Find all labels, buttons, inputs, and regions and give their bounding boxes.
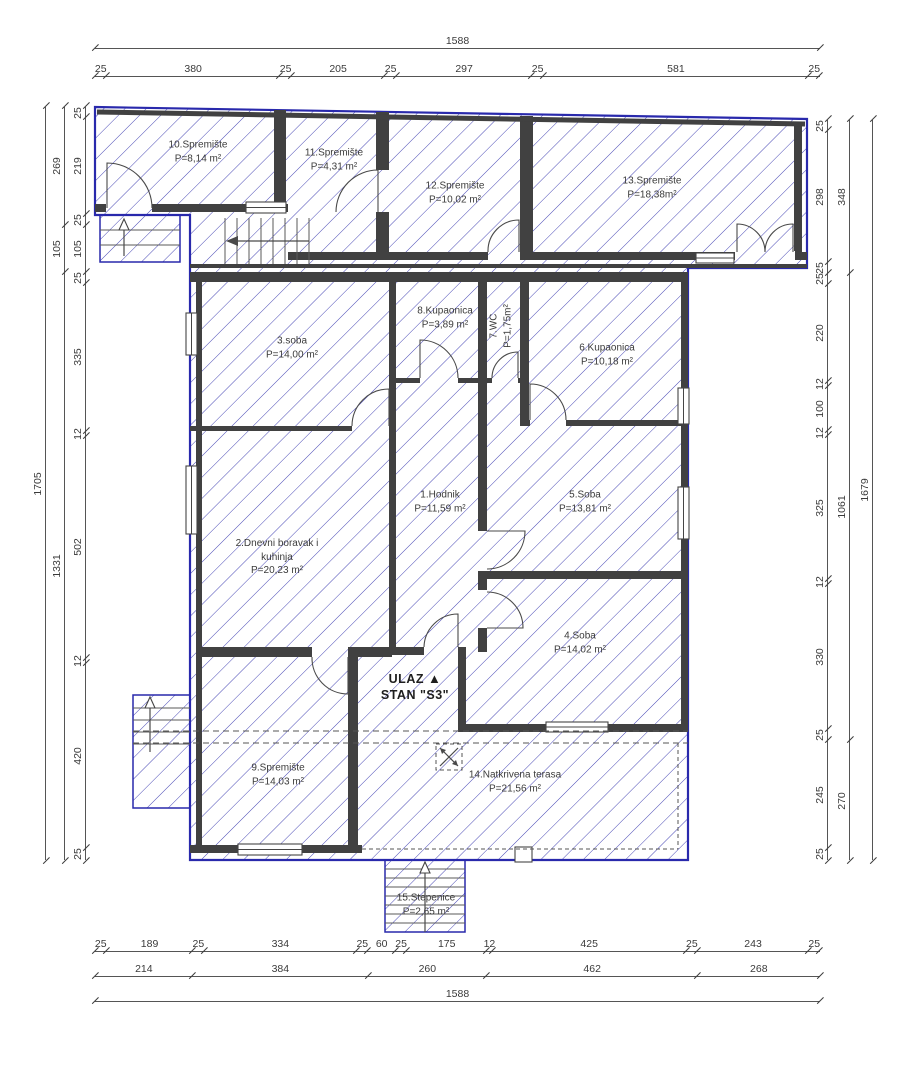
dim-segment: 380 [106,76,279,77]
dim-segment: 420 [85,663,86,848]
dim-label: 1679 [859,478,871,501]
dim-label: 25 [808,63,820,75]
dim-label: 25 [686,938,698,950]
dim-label: 325 [814,499,826,517]
dim-label: 335 [72,348,84,366]
dim-segment: 297 [396,76,532,77]
dim-segment: 330 [827,585,828,730]
dim-segment: 25 [827,849,828,860]
dim-label: 334 [272,938,290,950]
dim-segment: 25 [809,951,820,952]
room-label-wc-7: 7.WCP=1,75m² [488,304,515,348]
dim-label: 25 [532,63,544,75]
dim-label: 25 [356,938,368,950]
dim-segment: 270 [849,741,850,860]
dim-segment: 25 [85,849,86,860]
dim-label: 205 [329,63,347,75]
dim-segment: 335 [85,283,86,431]
dim-segment: 260 [368,976,487,977]
room-label-kupaonica-6: 6.KupaonicaP=10,18 m² [579,342,635,369]
dim-segment: 205 [291,76,385,77]
dim-label: 425 [580,938,598,950]
dim-label: 245 [814,786,826,804]
entrance-arrow-icon: ▲ [428,671,441,686]
dim-segment: 268 [698,976,820,977]
dim-label: 462 [583,963,601,975]
dim-label: 380 [184,63,202,75]
dim-label: 1331 [51,554,63,577]
room-label-soba-4: 4.SobaP=14,02 m² [554,630,606,657]
dim-label: 100 [814,400,826,418]
exterior-steps-top [100,215,180,262]
dim-segment: 581 [543,76,808,77]
dim-segment: 348 [849,120,850,273]
dim-label: 25 [95,938,107,950]
dim-segment: 462 [487,976,698,977]
dim-label: 348 [836,188,848,206]
dim-label: 220 [814,324,826,342]
dim-segment: 1588 [95,48,820,49]
floor-plan: 10.SpremišteP=8,14 m² 11.SpremišteP=4,31… [0,0,914,1080]
dim-segment: 384 [193,976,368,977]
dim-segment: 298 [827,131,828,262]
dim-label: 1705 [32,472,44,495]
dim-label: 25 [72,214,84,226]
dim-label: 25 [814,849,826,861]
dim-label: 1588 [446,988,469,1000]
dim-segment: 25 [809,76,820,77]
dim-segment: 1679 [872,120,873,860]
dim-segment: 325 [827,436,828,579]
dim-segment: 243 [698,951,809,952]
room-label-spremiste-9: 9.SpremišteP=14,03 m² [251,762,304,789]
room-label-spremiste-12: 12.SpremišteP=10,02 m² [426,180,485,207]
dim-segment: 175 [407,951,487,952]
dim-label: 189 [141,938,159,950]
dim-label: 1588 [446,35,469,47]
dim-label: 25 [72,107,84,119]
dim-label: 25 [72,272,84,284]
dim-segment: 60 [368,951,395,952]
floor-plan-drawing [0,0,914,1080]
dim-segment: 220 [827,284,828,381]
dim-label: 243 [744,938,762,950]
dim-segment: 1061 [849,273,850,741]
dim-segment: 334 [204,951,356,952]
room-label-spremiste-10: 10.SpremišteP=8,14 m² [169,139,228,166]
room-label-spremiste-11: 11.SpremišteP=4,31 m² [305,147,363,174]
dim-label: 25 [193,938,205,950]
dim-label: 105 [51,240,63,258]
room-label-natkrivena-terasa-14: 14.Natkrivena terasaP=21,56 m² [469,769,561,796]
dim-segment: 1331 [64,272,65,860]
dim-segment: 245 [827,741,828,849]
dim-label: 25 [808,938,820,950]
dim-segment: 189 [106,951,192,952]
room-label-stepenice-15: 15.StepeniceP=2,65 m² [397,892,455,919]
dim-segment: 100 [827,387,828,431]
entrance-label: ULAZ ▲ STAN "S3" [381,671,449,703]
dim-segment: 214 [95,976,193,977]
dim-label: 297 [455,63,473,75]
dim-label: 214 [135,963,153,975]
dim-label: 105 [72,240,84,258]
dim-label: 298 [814,188,826,206]
dim-label: 330 [814,648,826,666]
dim-label: 25 [814,120,826,132]
dim-segment: 219 [85,118,86,215]
room-label-spremiste-13: 13.SpremišteP=18,38m² [623,175,682,202]
dim-label: 502 [72,539,84,557]
dim-label: 219 [72,158,84,176]
dim-label: 269 [51,158,63,176]
dim-label: 268 [750,963,768,975]
dim-label: 25 [72,849,84,861]
room-label-soba-3: 3.sobaP=14,00 m² [266,335,318,362]
dim-segment: 1588 [95,1001,820,1002]
dim-segment: 105 [85,226,86,272]
dim-label: 384 [272,963,290,975]
dim-label: 1061 [836,496,848,519]
dim-label: 420 [72,747,84,765]
dim-segment: 502 [85,436,86,658]
dim-label: 25 [814,273,826,285]
dim-label: 25 [814,730,826,742]
dim-segment: 1705 [45,107,46,860]
dim-segment: 269 [64,107,65,226]
dim-label: 260 [419,963,437,975]
dim-label: 25 [385,63,397,75]
room-label-kupaonica-8: 8.KupaonicaP=3,89 m² [417,305,473,332]
room-label-dnevni-boravak-2: 2.Dnevni boravak ikuhinjaP=20,23 m² [236,537,319,578]
dim-label: 25 [95,63,107,75]
dim-segment: 105 [64,226,65,272]
dim-label: 175 [438,938,456,950]
room-label-hodnik-1: 1.HodnikP=11,59 m² [414,489,465,516]
dim-label: 60 [376,938,388,950]
dim-label: 270 [836,792,848,810]
room-label-soba-5: 5.SobaP=13,81 m² [559,489,611,516]
exterior-steps-left [133,695,190,808]
dim-segment: 425 [492,951,686,952]
dim-label: 25 [280,63,292,75]
dim-label: 581 [667,63,685,75]
dim-label: 25 [395,938,407,950]
